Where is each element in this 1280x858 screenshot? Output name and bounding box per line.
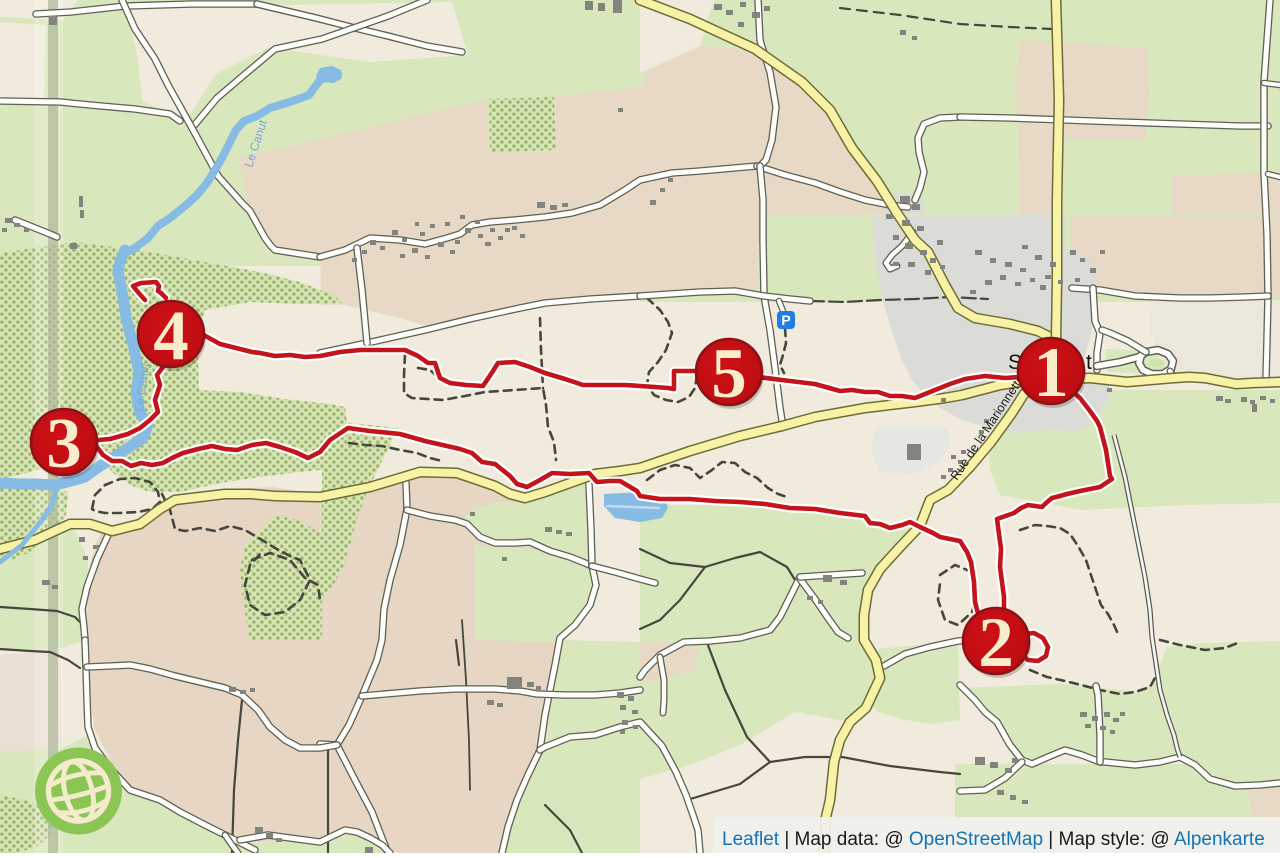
svg-text:4: 4: [153, 297, 189, 375]
svg-text:2: 2: [978, 604, 1014, 682]
svg-text:3: 3: [46, 405, 82, 483]
svg-text:Leaflet | Map data: @ OpenStre: Leaflet | Map data: @ OpenStreetMap | Ma…: [722, 829, 1265, 850]
svg-text:1: 1: [1033, 334, 1069, 412]
svg-text:P: P: [781, 312, 790, 328]
svg-text:5: 5: [711, 335, 747, 413]
svg-text:t: t: [1086, 351, 1092, 374]
